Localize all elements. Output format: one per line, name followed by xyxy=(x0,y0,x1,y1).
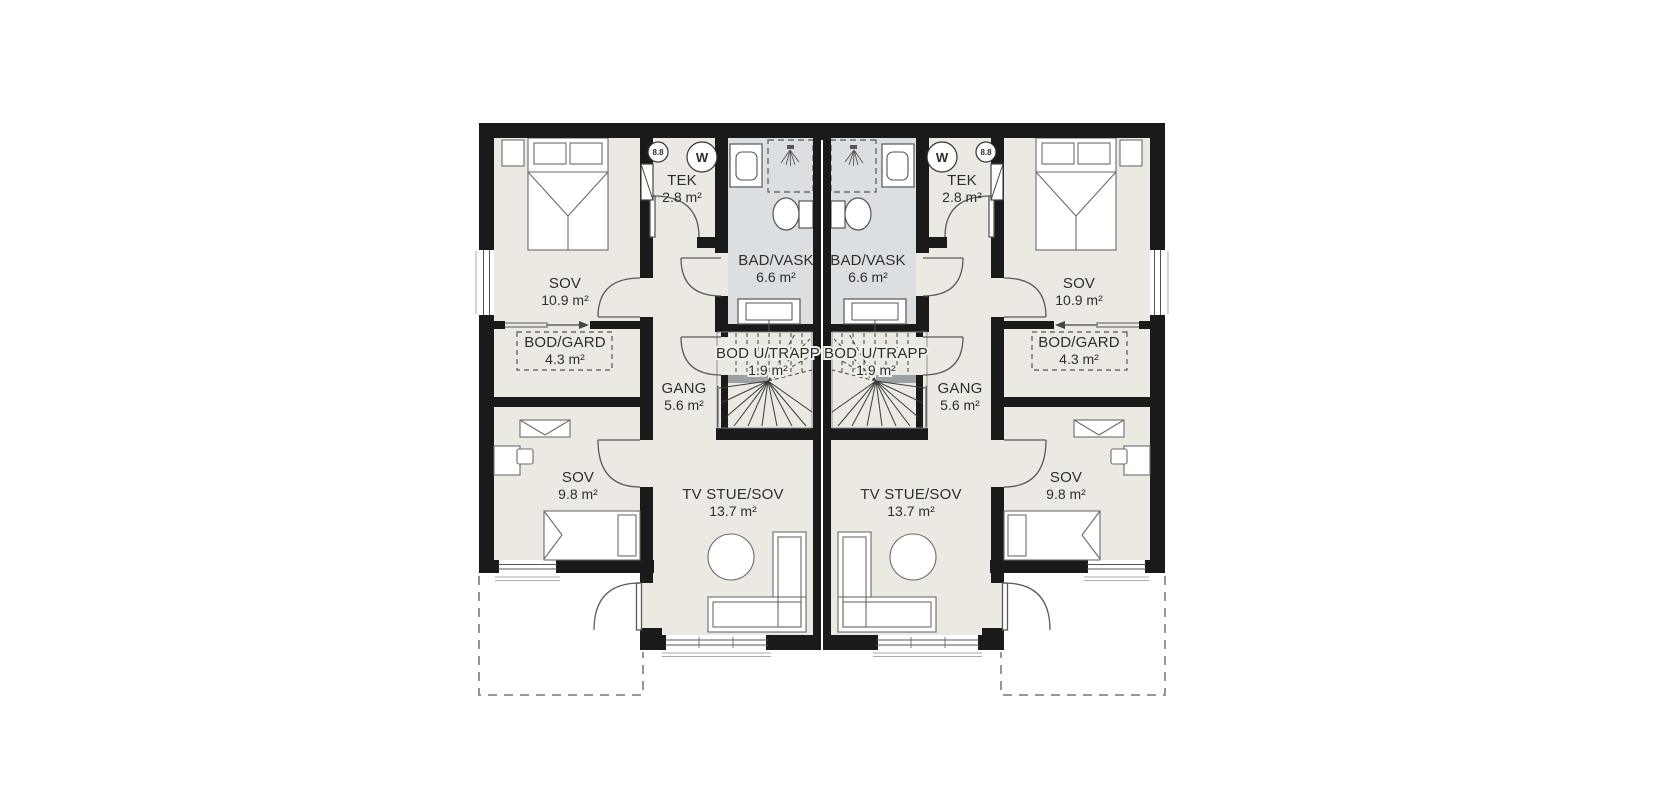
room-area-sov-small-left: 9.8 m² xyxy=(558,486,598,502)
room-area-bod-u-trapp-right: 1.9 m² xyxy=(856,362,896,378)
washing-machine-label-left: W xyxy=(696,150,709,165)
room-label-bod-gard-left: BOD/GARD xyxy=(524,334,606,351)
room-label-tv-stue-right: TV STUE/SOV xyxy=(860,486,961,503)
room-label-sov-main-right: SOV xyxy=(1063,275,1095,292)
room-label-tv-stue-left: TV STUE/SOV xyxy=(682,486,783,503)
floor-plan-page: SOV 10.9 m² BOD/GARD 4.3 m² SOV 9.8 m² T… xyxy=(0,0,1670,800)
room-label-bad-vask-right: BAD/VASK xyxy=(830,252,906,269)
room-area-tek-left: 2.8 m² xyxy=(662,189,702,205)
room-label-gang-right: GANG xyxy=(938,380,983,397)
room-label-tek-left: TEK xyxy=(667,172,697,189)
room-label-sov-small-right: SOV xyxy=(1050,469,1082,486)
room-area-gang-left: 5.6 m² xyxy=(664,397,704,413)
room-label-bad-vask-left: BAD/VASK xyxy=(738,252,814,269)
room-area-bad-vask-left: 6.6 m² xyxy=(756,269,796,285)
room-area-bod-u-trapp-left: 1.9 m² xyxy=(748,362,788,378)
floor-plan-svg: SOV 10.9 m² BOD/GARD 4.3 m² SOV 9.8 m² T… xyxy=(0,0,1670,800)
room-area-tek-right: 2.8 m² xyxy=(942,189,982,205)
room-label-sov-main-left: SOV xyxy=(549,275,581,292)
room-area-gang-right: 5.6 m² xyxy=(940,397,980,413)
room-label-bod-u-trapp-left: BOD U/TRAPP xyxy=(716,345,820,362)
room-label-sov-small-left: SOV xyxy=(562,469,594,486)
room-label-gang-left: GANG xyxy=(662,380,707,397)
washing-machine-label-right: W xyxy=(936,150,949,165)
room-area-sov-main-right: 10.9 m² xyxy=(1055,292,1103,308)
unit-left-geometry xyxy=(476,123,831,695)
unit-right-geometry xyxy=(813,123,1168,695)
room-area-bad-vask-right: 6.6 m² xyxy=(848,269,888,285)
ventilation-label-left: 8.8 xyxy=(652,148,664,157)
room-area-sov-main-left: 10.9 m² xyxy=(541,292,589,308)
ventilation-label-right: 8.8 xyxy=(980,148,992,157)
room-area-sov-small-right: 9.8 m² xyxy=(1046,486,1086,502)
room-area-tv-stue-right: 13.7 m² xyxy=(887,503,935,519)
room-area-bod-gard-left: 4.3 m² xyxy=(545,351,585,367)
room-area-bod-gard-right: 4.3 m² xyxy=(1059,351,1099,367)
room-label-tek-right: TEK xyxy=(947,172,977,189)
room-label-bod-u-trapp-right: BOD U/TRAPP xyxy=(824,345,928,362)
room-area-tv-stue-left: 13.7 m² xyxy=(709,503,757,519)
party-wall-gap xyxy=(821,140,823,650)
room-label-bod-gard-right: BOD/GARD xyxy=(1038,334,1120,351)
